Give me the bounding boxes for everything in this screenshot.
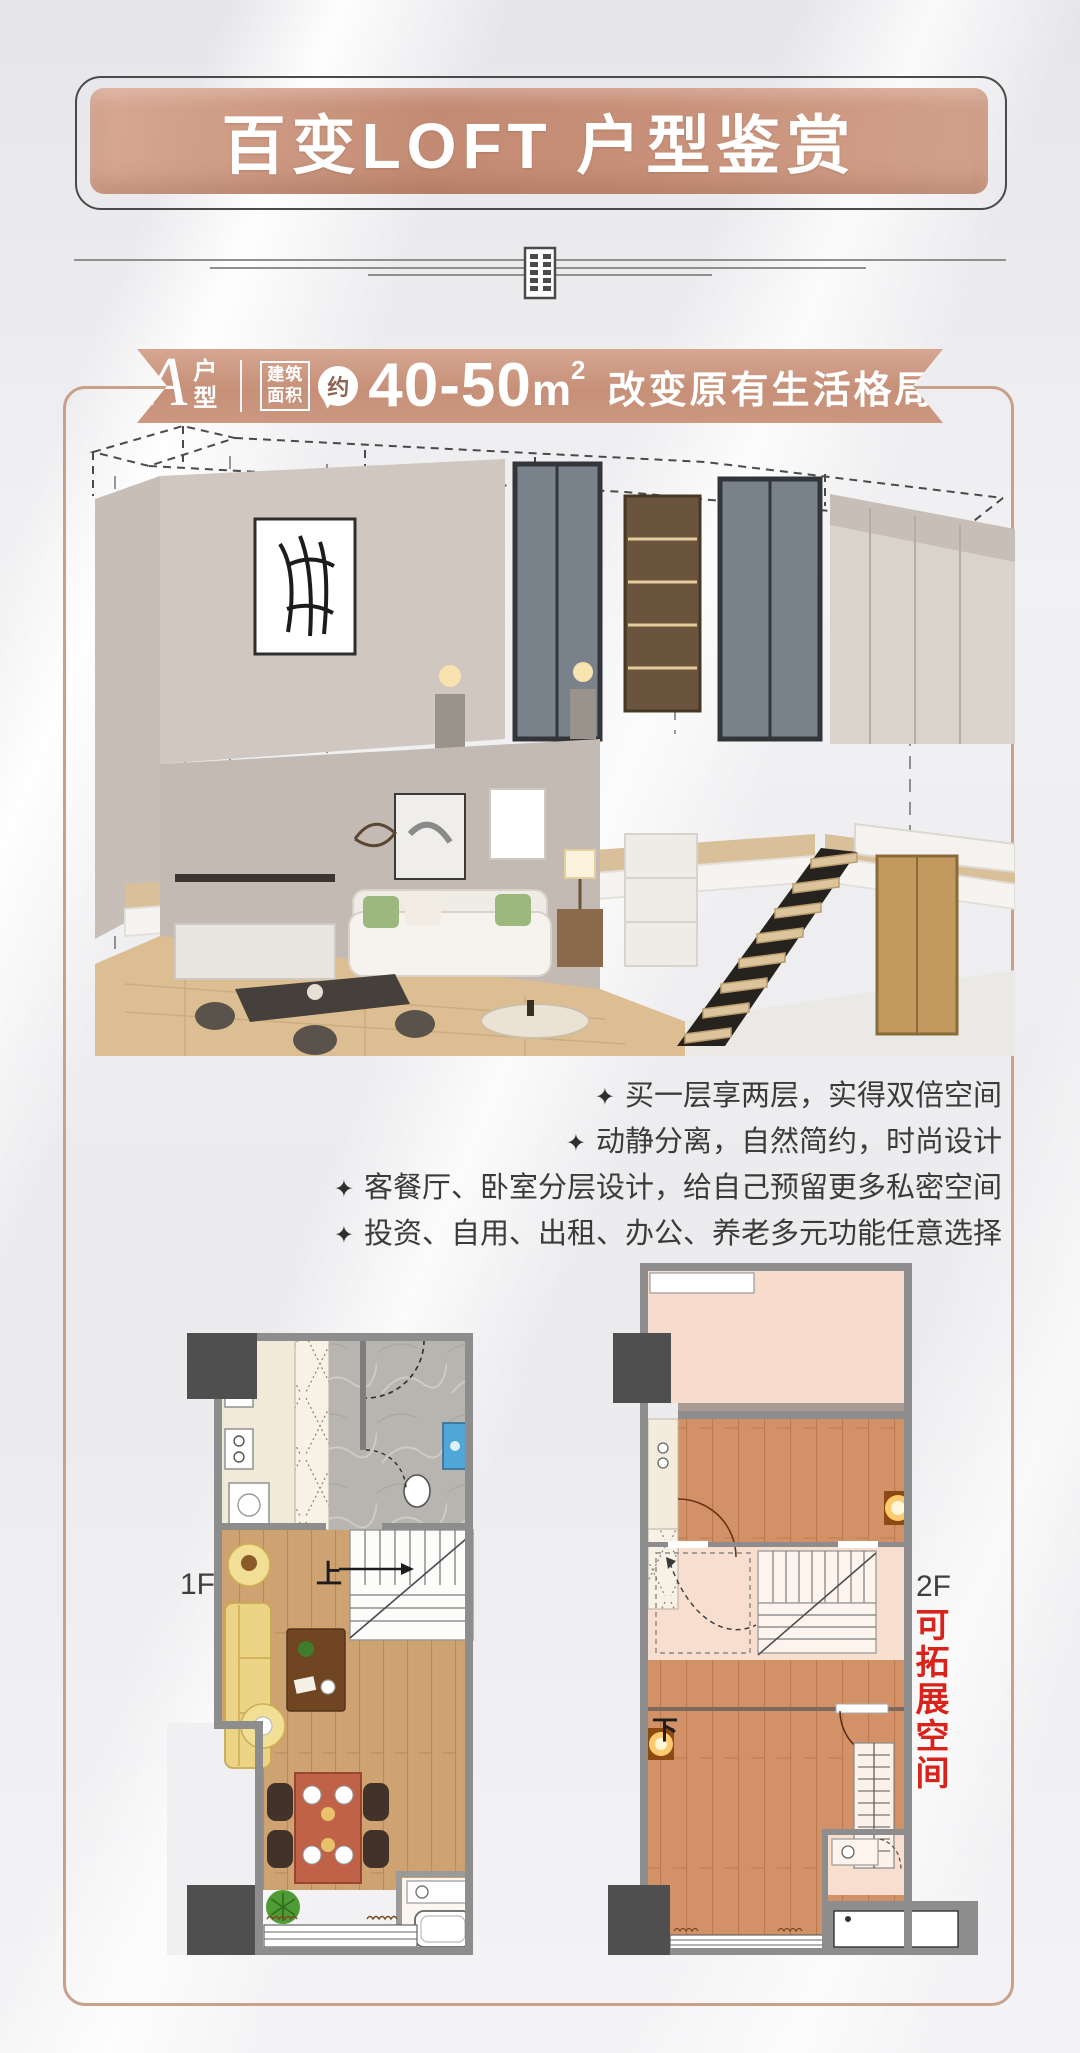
plan1-dining [266, 1773, 389, 1924]
poster-canvas: 百变LOFT 户型鉴赏 A 户型 建筑 面积 约 [0, 0, 1080, 2053]
stair-down-label: 下 [652, 1710, 678, 1747]
stair-up-label: 上 [316, 1554, 342, 1591]
expand-note: 可拓展空间 [912, 1607, 946, 1792]
building-icon [525, 248, 555, 298]
area-caption-line2: 面积 [267, 386, 303, 407]
plan1-stairs [339, 1530, 473, 1640]
area-value: 40-50 m 2 [368, 355, 585, 417]
area-unit: m [532, 369, 571, 413]
label-1f: 1F [180, 1568, 215, 1602]
feature-row: ✦投资、自用、出租、办公、养老多元功能任意选择 [334, 1212, 1002, 1258]
approx-bubble: 约 [318, 366, 358, 406]
sofa [349, 890, 551, 976]
section-divider [60, 246, 1020, 302]
diamond-bullet-icon: ✦ [334, 1176, 354, 1203]
type-badge-ribbon: A 户型 建筑 面积 约 40-50 m 2 改变原有生活格局 [137, 349, 943, 423]
header-plate: 百变LOFT 户型鉴赏 [90, 88, 988, 194]
feature-text: 客餐厅、卧室分层设计，给自己预留更多私密空间 [364, 1172, 1002, 1204]
badge-separator [240, 360, 242, 412]
feature-text: 买一层享两层，实得双倍空间 [625, 1080, 1002, 1112]
area-exponent: 2 [571, 357, 585, 383]
loft-3d-render [65, 404, 1015, 1056]
feature-row: ✦动静分离，自然简约，时尚设计 [334, 1120, 1002, 1166]
feature-text: 动静分离，自然简约，时尚设计 [596, 1126, 1002, 1158]
plan-letter: A [145, 348, 188, 418]
plan-type-label: 户型 [193, 359, 220, 413]
feature-text: 投资、自用、出租、办公、养老多元功能任意选择 [364, 1218, 1002, 1250]
area-range: 40-50 [368, 355, 532, 417]
floor-plan-1f [167, 1333, 480, 1955]
zebra-artwork [255, 519, 355, 654]
badge-slogan: 改变原有生活格局 [607, 359, 935, 414]
area-caption-box: 建筑 面积 [260, 361, 310, 410]
page-title: 百变LOFT 户型鉴赏 [222, 95, 857, 187]
area-caption-line1: 建筑 [267, 365, 303, 386]
diamond-bullet-icon: ✦ [334, 1222, 354, 1249]
plan2-ac-platform [822, 1901, 978, 1955]
feature-list: ✦买一层享两层，实得双倍空间 ✦动静分离，自然简约，时尚设计 ✦客餐厅、卧室分层… [334, 1074, 1002, 1258]
feature-row: ✦客餐厅、卧室分层设计，给自己预留更多私密空间 [334, 1166, 1002, 1212]
diamond-bullet-icon: ✦ [595, 1084, 615, 1111]
label-2f: 2F [916, 1570, 951, 1604]
diamond-bullet-icon: ✦ [566, 1130, 586, 1157]
feature-row: ✦买一层享两层，实得双倍空间 [334, 1074, 1002, 1120]
